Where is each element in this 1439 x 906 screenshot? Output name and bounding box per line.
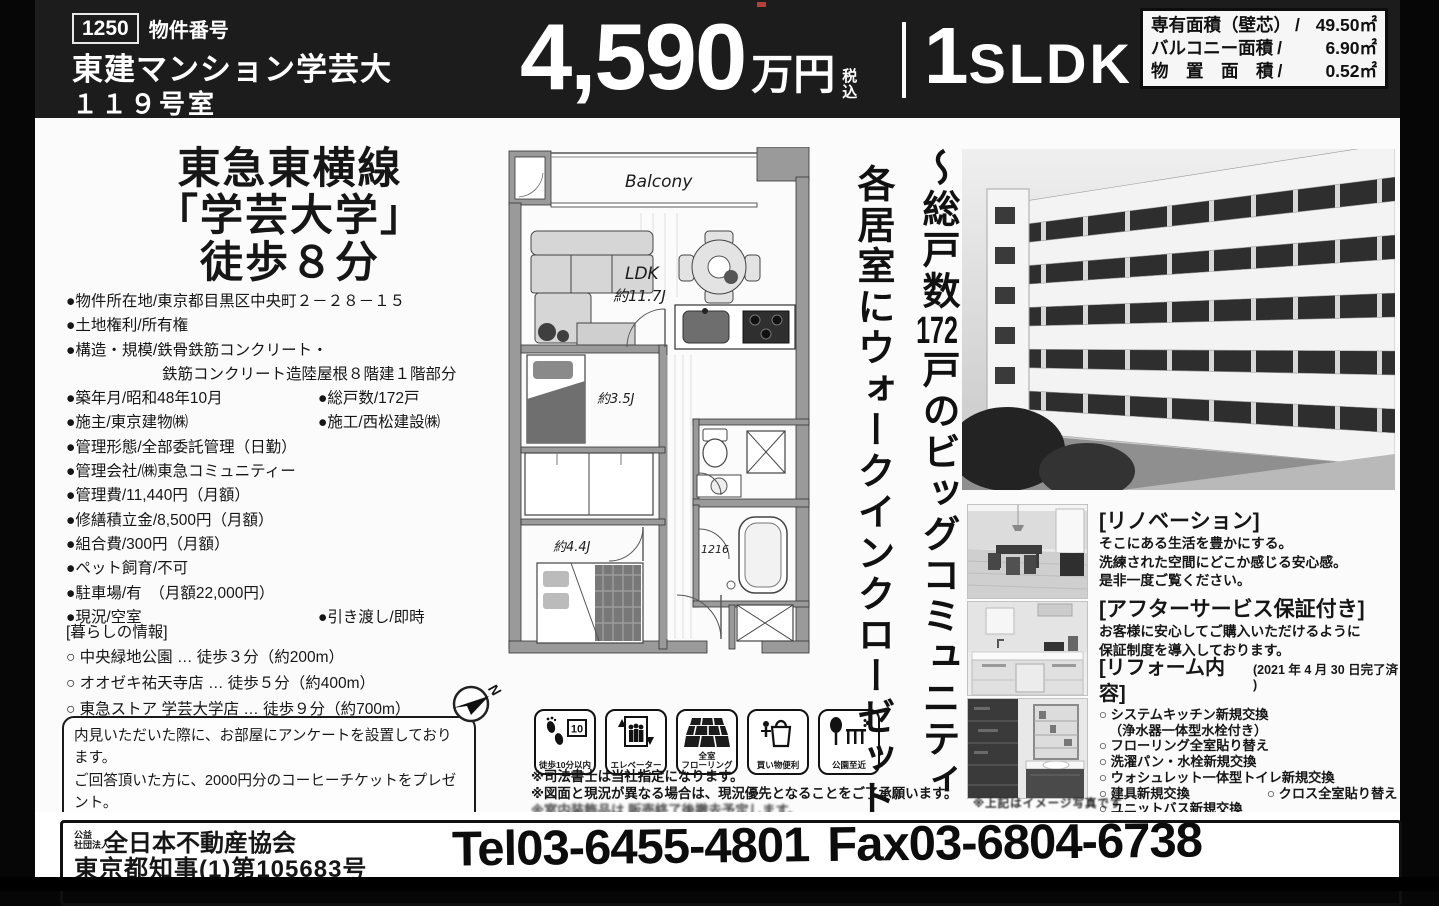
svg-text:10: 10	[571, 724, 583, 736]
tax-included-label: 税 込	[842, 69, 857, 101]
walk-10min-icon: 10	[542, 715, 588, 749]
price-value: 4,590	[520, 2, 745, 112]
svg-text:1216: 1216	[701, 543, 729, 556]
detail-row: ●土地権利/所有権	[66, 314, 498, 338]
renovation-block: [リノベーション] そこにある生活を豊かにする。 洗練された空間にどこか感じる安…	[1099, 509, 1401, 591]
svg-text:LDK: LDK	[625, 264, 661, 284]
living-info-item: ○ 中央緑地公園 … 徒歩３分（約200m）	[66, 645, 410, 671]
fax-number: Fax03-6804-6738	[827, 812, 1202, 873]
feature-flooring: 全室 フローリング	[676, 709, 738, 775]
station-access-heading: 東急東横線 「学芸大学」 徒歩８分	[120, 146, 460, 287]
detail-row: ●駐車場/有 （月額22,000円）	[66, 582, 498, 606]
area-row: 専有面積（壁芯） / 49.50㎡	[1151, 14, 1377, 37]
catch-copy-line2: 各居室にウォークインクローゼット〜	[845, 148, 900, 864]
kitchen-photo	[967, 601, 1088, 696]
catch-copy: 〜総戸数172戸のビッグコミュニティ 各居室にウォークインクローゼット〜	[845, 148, 965, 864]
room-number: １１９号室	[72, 84, 217, 121]
detail-row: ●管理会社/㈱東急コミュニティー	[66, 460, 498, 484]
after-service-title: [アフターサービス保証付き]	[1099, 597, 1401, 623]
scan-artifact	[757, 2, 766, 7]
svg-text:約3.5J: 約3.5J	[597, 392, 635, 407]
tel-number: Tel03-6455-4801	[452, 817, 810, 877]
feature-elevator: エレベーター	[605, 709, 667, 775]
detail-row: ●ペット飼育/不可	[66, 557, 498, 581]
price-unit: 万円	[751, 41, 835, 102]
area-row: バルコニー面積 / 6.90㎡	[1151, 37, 1377, 60]
living-info-item: ○ オオゼキ祐天寺店 … 徒歩５分（約400m）	[66, 671, 410, 697]
svg-text:約4.4J: 約4.4J	[553, 540, 591, 555]
header-divider	[902, 22, 906, 98]
layout-type: 1 SLDK	[924, 8, 1133, 104]
area-table: 専有面積（壁芯） / 49.50㎡ バルコニー面積 / 6.90㎡ 物 置 面 …	[1140, 8, 1388, 89]
detail-row: ●管理費/11,440円（月額）	[66, 484, 498, 508]
property-details-list: ●物件所在地/東京都目黒区中央町２－２８－１５ ●土地権利/所有権 ●構造・規模…	[66, 290, 498, 630]
area-row: 物 置 面 積 / 0.52㎡	[1151, 60, 1377, 83]
detail-row: ●構造・規模/鉄骨鉄筋コンクリート・	[66, 339, 498, 363]
page-bottom-edge	[0, 877, 1439, 891]
detail-row: ●修繕積立金/8,500円（月額）	[66, 509, 498, 533]
contact-numbers: Tel03-6455-4801 Fax03-6804-6738	[452, 812, 1203, 877]
detail-row: ●施主/東京建物㈱●施工/西松建設㈱	[66, 411, 498, 435]
reform-row-pair: ○ 建具新規交換○ クロス全室貼り替え	[1099, 786, 1401, 802]
detail-row: ●管理形態/全部委託管理（日勤）	[66, 436, 498, 460]
washroom-photo	[967, 698, 1088, 799]
detail-row: 鉄筋コンクリート造陸屋根８階建１階部分	[66, 363, 498, 387]
dining-room-photo	[967, 504, 1088, 599]
building-name: 東建マンション学芸大	[72, 44, 392, 89]
north-compass-icon: N	[444, 674, 514, 734]
detail-row: ●物件所在地/東京都目黒区中央町２－２８－１５	[66, 290, 498, 314]
living-info: [暮らしの情報] ○ 中央緑地公園 … 徒歩３分（約200m） ○ オオゼキ祐天…	[66, 621, 410, 723]
flooring-icon	[684, 715, 730, 749]
floor-plan: Balcony LDK 約11.7J 約3.5J 約4.4J 1216	[507, 147, 812, 677]
reform-date: (2021 年 4 月 30 日完了済 )	[1253, 659, 1401, 692]
reform-title-row: [リフォーム内容] (2021 年 4 月 30 日完了済 )	[1099, 655, 1401, 707]
catch-copy-line1: 〜総戸数172戸のビッグコミュニティ	[910, 148, 965, 864]
renovation-title: [リノベーション]	[1099, 509, 1401, 535]
feature-icons-row: 10 徒歩10分以内 エレベーター 全室 フローリング	[534, 709, 880, 775]
elevator-icon	[613, 715, 659, 749]
shopping-bag-icon	[755, 715, 801, 749]
property-number-label: 物件番号	[149, 14, 229, 43]
balcony-label: Balcony	[625, 172, 693, 192]
detail-row: ●築年月/昭和48年10月●総戸数/172戸	[66, 387, 498, 411]
detail-row: ●組合費/300円（月額）	[66, 533, 498, 557]
feature-shopping: 買い物便利	[747, 709, 809, 775]
reform-title: [リフォーム内容]	[1099, 655, 1247, 707]
price: 4,590 万円 税 込	[520, 2, 857, 112]
living-info-title: [暮らしの情報]	[66, 621, 410, 645]
building-exterior-photo	[962, 149, 1395, 490]
svg-text:約11.7J: 約11.7J	[613, 287, 666, 305]
feature-walk-10min: 10 徒歩10分以内	[534, 709, 596, 775]
after-service-block: [アフターサービス保証付き] お客様に安心してご購入いただけるように 保証制度を…	[1099, 597, 1401, 660]
property-number: 1250	[72, 13, 139, 44]
property-id: 1250 物件番号	[72, 13, 229, 44]
